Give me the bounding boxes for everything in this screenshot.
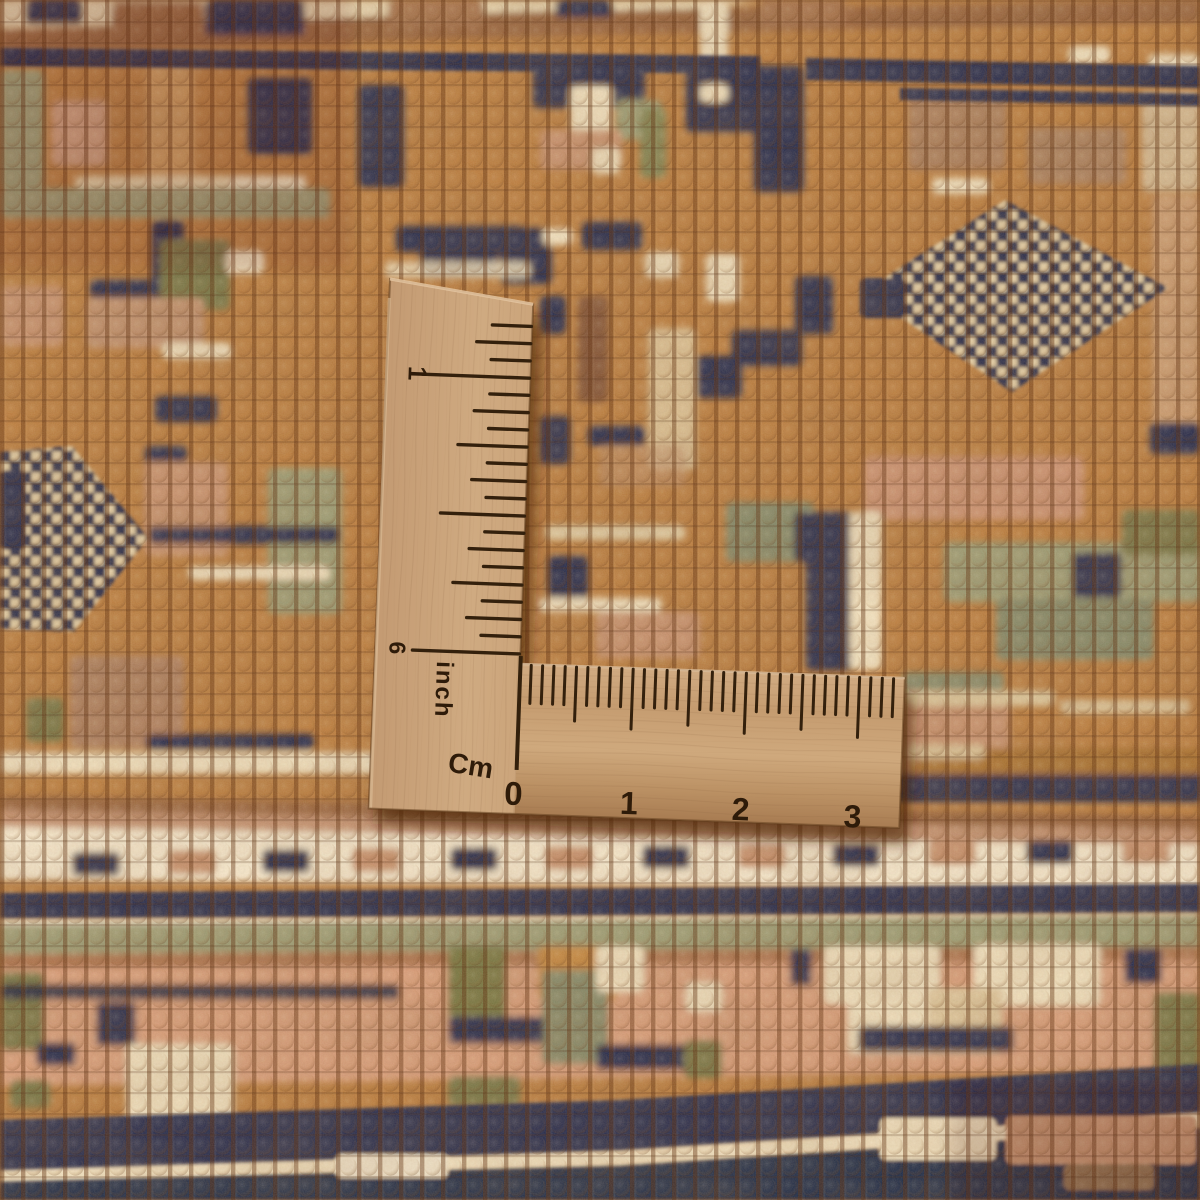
svg-text:6: 6 [384,641,410,655]
svg-text:inch: inch [429,661,458,719]
svg-text:1: 1 [402,366,433,382]
svg-text:3: 3 [843,798,862,835]
svg-text:1: 1 [619,785,638,822]
svg-text:0: 0 [504,775,524,813]
svg-text:2: 2 [731,791,750,828]
